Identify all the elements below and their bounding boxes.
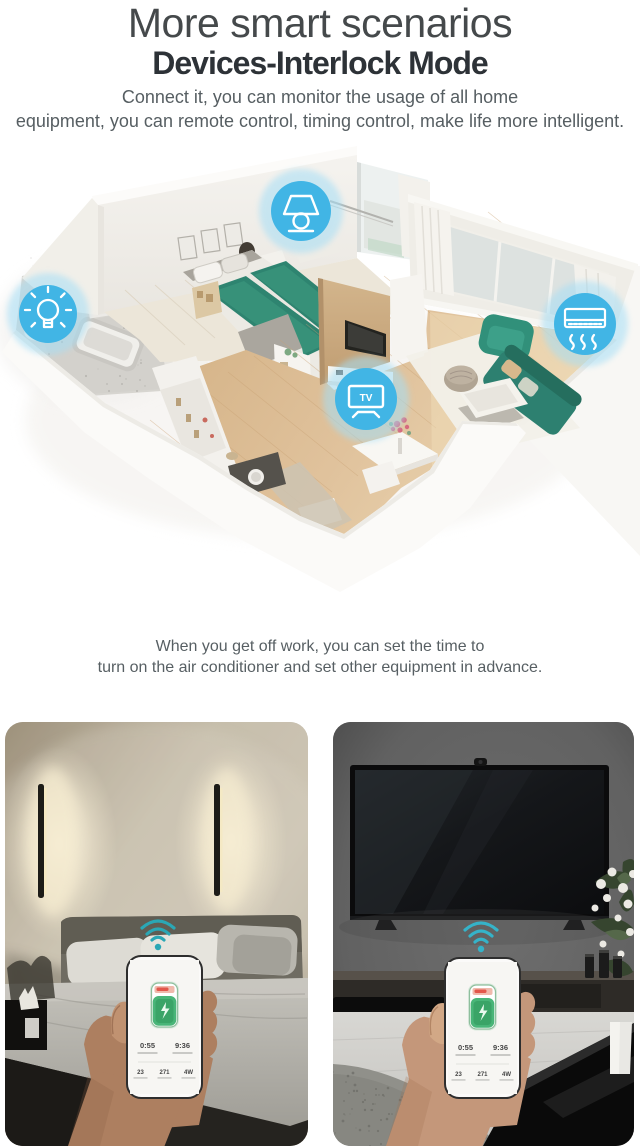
svg-text:4W: 4W — [184, 1070, 193, 1076]
svg-text:4W: 4W — [502, 1072, 511, 1078]
svg-text:9:36: 9:36 — [175, 1041, 190, 1050]
svg-text:0:55: 0:55 — [140, 1041, 155, 1050]
svg-text:271: 271 — [159, 1070, 170, 1076]
svg-text:TV: TV — [360, 393, 373, 404]
svg-text:23: 23 — [455, 1072, 462, 1078]
svg-text:23: 23 — [137, 1070, 144, 1076]
svg-text:0:55: 0:55 — [458, 1043, 473, 1052]
svg-text:9:36: 9:36 — [493, 1043, 508, 1052]
svg-text:271: 271 — [477, 1072, 488, 1078]
